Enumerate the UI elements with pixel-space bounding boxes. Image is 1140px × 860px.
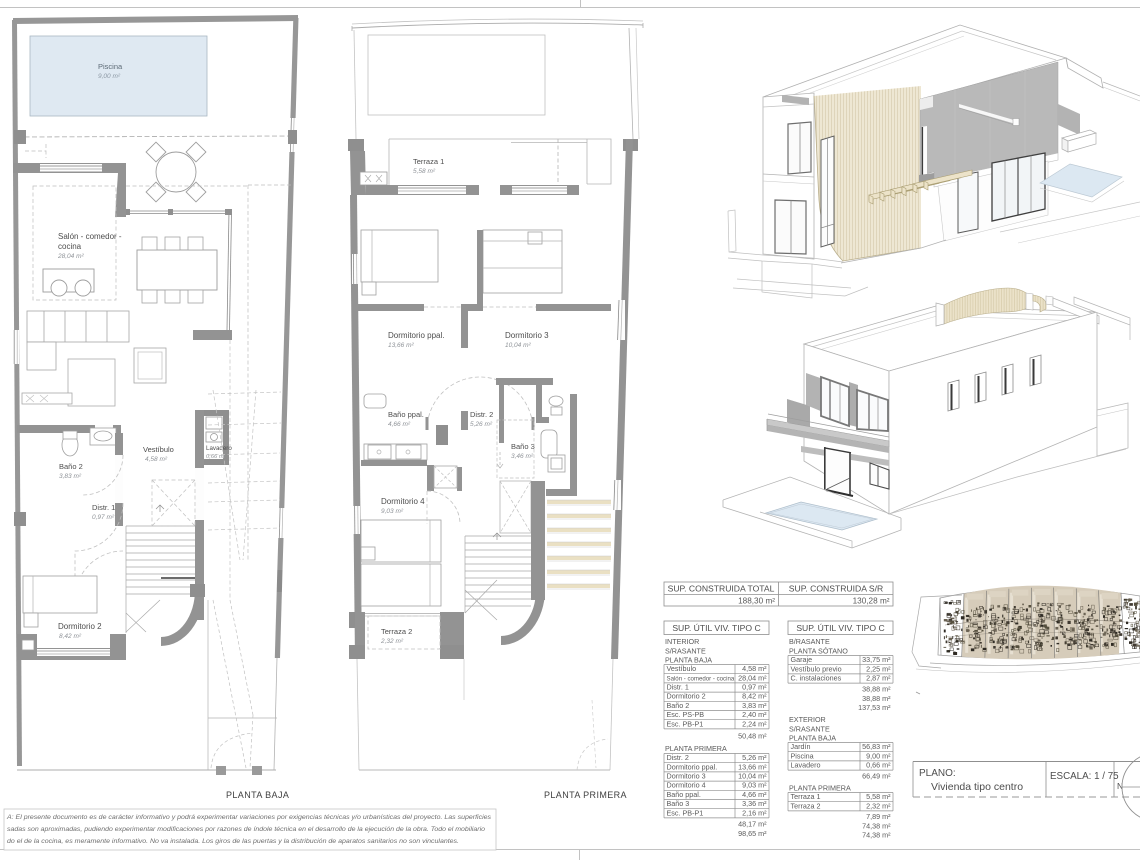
svg-text:Dormitorio 4: Dormitorio 4 xyxy=(381,497,425,506)
svg-text:Distr. 1: Distr. 1 xyxy=(92,503,115,512)
svg-text:do el de la cocina, es meramen: do el de la cocina, es meramente informa… xyxy=(7,838,459,845)
svg-text:4,58 m²: 4,58 m² xyxy=(742,664,767,673)
svg-text:0,97 m²: 0,97 m² xyxy=(742,683,767,692)
svg-text:Baño 2: Baño 2 xyxy=(59,462,83,471)
svg-text:Distr. 2: Distr. 2 xyxy=(470,410,493,419)
svg-text:Esc. PB-P1: Esc. PB-P1 xyxy=(667,719,704,728)
svg-text:5,26 m²: 5,26 m² xyxy=(742,753,767,762)
svg-text:50,48 m²: 50,48 m² xyxy=(738,732,767,741)
svg-text:10,04 m²: 10,04 m² xyxy=(505,342,531,349)
svg-text:Dormitorio 3: Dormitorio 3 xyxy=(667,772,706,781)
svg-text:38,88 m²: 38,88 m² xyxy=(862,694,891,703)
svg-text:Salón - comedor - cocina: Salón - comedor - cocina xyxy=(667,675,735,682)
svg-text:PLANTA BAJA: PLANTA BAJA xyxy=(226,790,289,800)
svg-text:SUP. ÚTIL VIV. TIPO C: SUP. ÚTIL VIV. TIPO C xyxy=(672,623,760,633)
svg-text:137,53 m²: 137,53 m² xyxy=(858,703,891,712)
svg-text:13,66 m²: 13,66 m² xyxy=(738,762,767,771)
svg-text:4,66 m²: 4,66 m² xyxy=(388,421,411,428)
svg-text:7,89 m²: 7,89 m² xyxy=(866,812,891,821)
svg-text:10,04 m²: 10,04 m² xyxy=(738,772,767,781)
svg-text:ESCALA: 1 / 75: ESCALA: 1 / 75 xyxy=(1050,771,1119,782)
svg-text:Piscina: Piscina xyxy=(791,751,814,760)
svg-text:Baño 3: Baño 3 xyxy=(667,799,690,808)
svg-text:74,38 m²: 74,38 m² xyxy=(862,821,891,830)
svg-text:33,75 m²: 33,75 m² xyxy=(862,655,891,664)
svg-text:2,25 m²: 2,25 m² xyxy=(866,664,891,673)
svg-text:Baño ppal.: Baño ppal. xyxy=(388,410,424,419)
svg-text:0,66 m²: 0,66 m² xyxy=(866,761,891,770)
svg-text:2,24 m²: 2,24 m² xyxy=(742,719,767,728)
svg-text:Terraza 1: Terraza 1 xyxy=(791,792,821,801)
svg-text:Lavadero: Lavadero xyxy=(791,761,821,770)
svg-text:3,36 m²: 3,36 m² xyxy=(742,799,767,808)
svg-text:Esc. PS-PB: Esc. PS-PB xyxy=(667,710,705,719)
svg-text:4,66 m²: 4,66 m² xyxy=(742,790,767,799)
svg-text:Salón - comedor -: Salón - comedor - xyxy=(58,232,122,241)
svg-text:C. instalaciones: C. instalaciones xyxy=(791,674,842,683)
svg-text:66,49 m²: 66,49 m² xyxy=(862,772,891,781)
svg-text:98,65 m²: 98,65 m² xyxy=(738,829,767,838)
svg-text:Baño ppal.: Baño ppal. xyxy=(667,790,701,799)
svg-text:Dormitorio 4: Dormitorio 4 xyxy=(667,781,706,790)
svg-text:3,83 m²: 3,83 m² xyxy=(742,701,767,710)
svg-text:28,04 m²: 28,04 m² xyxy=(738,673,767,682)
svg-text:Vestíbulo: Vestíbulo xyxy=(667,664,697,673)
svg-text:S/RASANTE: S/RASANTE xyxy=(665,646,706,655)
svg-text:Dormitorio 3: Dormitorio 3 xyxy=(505,331,549,340)
svg-text:Distr. 1: Distr. 1 xyxy=(667,683,689,692)
svg-text:0,97 m²: 0,97 m² xyxy=(92,514,115,521)
svg-text:5,58 m²: 5,58 m² xyxy=(866,792,891,801)
svg-text:Terraza 1: Terraza 1 xyxy=(413,157,444,166)
svg-text:Terraza 2: Terraza 2 xyxy=(381,627,412,636)
svg-text:4,58 m²: 4,58 m² xyxy=(145,456,168,463)
svg-text:2,32 m²: 2,32 m² xyxy=(866,801,891,810)
svg-text:9,03 m²: 9,03 m² xyxy=(742,781,767,790)
svg-text:PLANTA PRIMERA: PLANTA PRIMERA xyxy=(544,790,627,800)
svg-text:Vivienda tipo centro: Vivienda tipo centro xyxy=(931,781,1023,793)
svg-text:Dormitorio ppal.: Dormitorio ppal. xyxy=(667,762,718,771)
svg-text:PLANTA SÓTANO: PLANTA SÓTANO xyxy=(789,646,848,655)
svg-text:130,28 m²: 130,28 m² xyxy=(853,596,890,605)
svg-text:2,87 m²: 2,87 m² xyxy=(866,674,891,683)
svg-text:3,46 m²: 3,46 m² xyxy=(511,453,534,460)
svg-text:Esc. PB-P1: Esc. PB-P1 xyxy=(667,808,704,817)
svg-text:2,32 m²: 2,32 m² xyxy=(380,638,404,645)
svg-text:INTERIOR: INTERIOR xyxy=(665,637,699,646)
svg-text:9,00 m²: 9,00 m² xyxy=(866,751,891,760)
svg-text:Dormitorio ppal.: Dormitorio ppal. xyxy=(388,331,444,340)
svg-text:SUP. ÚTIL VIV. TIPO C: SUP. ÚTIL VIV. TIPO C xyxy=(796,623,884,633)
svg-text:9,03 m²: 9,03 m² xyxy=(381,508,404,515)
svg-text:sadas son aproximadas, pudiend: sadas son aproximadas, pudiendo experime… xyxy=(7,826,485,833)
svg-text:Terraza 2: Terraza 2 xyxy=(791,801,821,810)
svg-text:Jardín: Jardín xyxy=(791,742,811,751)
svg-text:Vestíbulo: Vestíbulo xyxy=(143,445,174,454)
svg-text:5,26 m²: 5,26 m² xyxy=(470,421,493,428)
svg-text:8,42 m²: 8,42 m² xyxy=(742,692,767,701)
svg-text:188,30 m²: 188,30 m² xyxy=(738,596,775,605)
svg-text:Garaje: Garaje xyxy=(791,655,813,664)
svg-text:Dormitorio 2: Dormitorio 2 xyxy=(667,692,706,701)
svg-text:EXTERIOR: EXTERIOR xyxy=(789,715,826,724)
svg-text:Dormitorio 2: Dormitorio 2 xyxy=(58,622,102,631)
svg-text:2,16 m²: 2,16 m² xyxy=(742,808,767,817)
svg-text:PLANO:: PLANO: xyxy=(919,768,956,779)
svg-text:Piscina: Piscina xyxy=(98,62,123,71)
svg-text:PLANTA PRIMERA: PLANTA PRIMERA xyxy=(665,744,727,753)
svg-text:Lavadero: Lavadero xyxy=(206,445,232,452)
svg-text:Baño 2: Baño 2 xyxy=(667,701,690,710)
svg-text:74,38 m²: 74,38 m² xyxy=(862,831,891,840)
svg-text:28,04 m²: 28,04 m² xyxy=(57,253,84,260)
svg-text:B/RASANTE: B/RASANTE xyxy=(789,637,830,646)
svg-text:8,42 m²: 8,42 m² xyxy=(59,633,82,640)
svg-text:S/RASANTE: S/RASANTE xyxy=(789,724,830,733)
svg-text:A: El presente documento es de: A: El presente documento es de carácter … xyxy=(6,814,492,821)
svg-text:cocina: cocina xyxy=(58,242,82,251)
svg-text:48,17 m²: 48,17 m² xyxy=(738,820,767,829)
svg-text:Baño 3: Baño 3 xyxy=(511,442,535,451)
svg-text:Vestíbulo previo: Vestíbulo previo xyxy=(791,664,842,673)
svg-text:Distr. 2: Distr. 2 xyxy=(667,753,689,762)
svg-text:13,66 m²: 13,66 m² xyxy=(388,342,414,349)
svg-text:3,83 m²: 3,83 m² xyxy=(59,473,82,480)
svg-text:56,83 m²: 56,83 m² xyxy=(862,742,891,751)
svg-text:9,00 m²: 9,00 m² xyxy=(98,73,121,80)
svg-text:2,40 m²: 2,40 m² xyxy=(742,710,767,719)
svg-text:SUP. CONSTRUIDA S/R: SUP. CONSTRUIDA S/R xyxy=(789,584,883,594)
svg-text:38,88 m²: 38,88 m² xyxy=(862,685,891,694)
svg-text:5,58 m²: 5,58 m² xyxy=(413,168,436,175)
svg-text:SUP. CONSTRUIDA TOTAL: SUP. CONSTRUIDA TOTAL xyxy=(668,584,775,594)
